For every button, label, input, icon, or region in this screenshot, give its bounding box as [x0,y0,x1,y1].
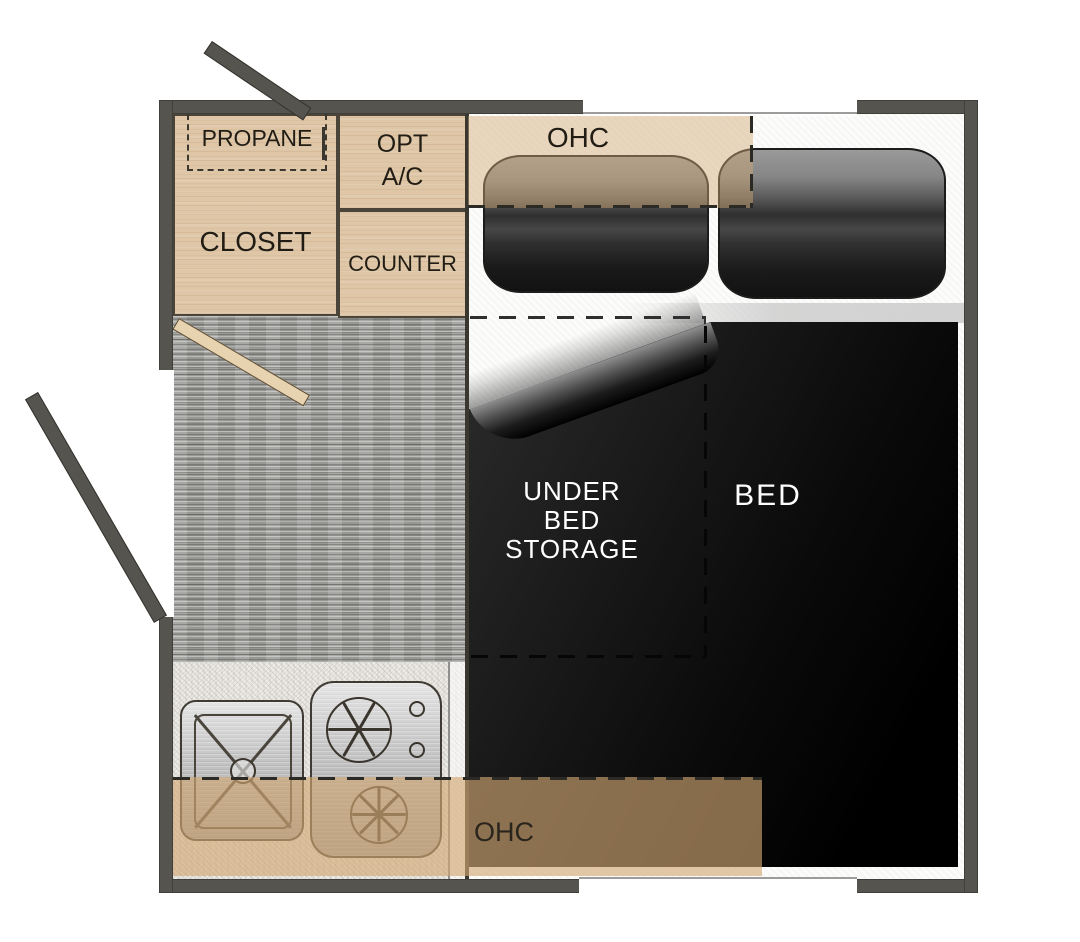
wall-right [964,100,978,893]
window-opening-bottom-sill-line [579,877,857,879]
bed-platform-edge-dashed-line [470,316,706,319]
stove-knob-1 [409,701,425,717]
overhead-cabinet-top-dashed-bottom [468,205,753,208]
bed-label: BED [688,479,848,512]
closet-label: CLOSET [173,227,338,258]
under-bed-storage-label: UNDER BED STORAGE [472,477,672,564]
window-opening-top-sill-line [583,112,857,114]
door-opening-left [157,370,174,617]
opt-ac-label-line2: A/C [338,161,467,194]
carpet-floor [173,316,466,662]
overhead-cabinet-top-dashed-right [750,116,753,208]
window-opening-bottom [579,877,857,895]
opt-ac-label-line1: OPT [338,128,467,161]
floor-plan-canvas: PROPANE CLOSET OPT A/C COUNTER UNDER BED… [0,0,1080,942]
overhead-cabinet-top: OHC [468,116,753,208]
under-bed-storage-dashed-bottom [471,655,707,658]
exterior-door-panel-left [25,392,167,623]
overhead-cabinet-bottom: OHC [173,777,762,876]
overhead-cabinet-top-label: OHC [468,123,688,154]
under-bed-storage-label-line2: BED [472,506,672,535]
opt-ac-label: OPT A/C [338,128,467,194]
galley-bed-divider-line [465,114,469,879]
overhead-cabinet-bottom-dashed-top [173,777,762,780]
propane-label: PROPANE [189,126,325,151]
overhead-cabinet-bottom-label: OHC [474,818,534,848]
counter-label: COUNTER [338,252,467,276]
under-bed-storage-label-line1: UNDER [472,477,672,506]
stove-knob-2 [409,742,425,758]
under-bed-storage-label-line3: STORAGE [472,535,672,564]
